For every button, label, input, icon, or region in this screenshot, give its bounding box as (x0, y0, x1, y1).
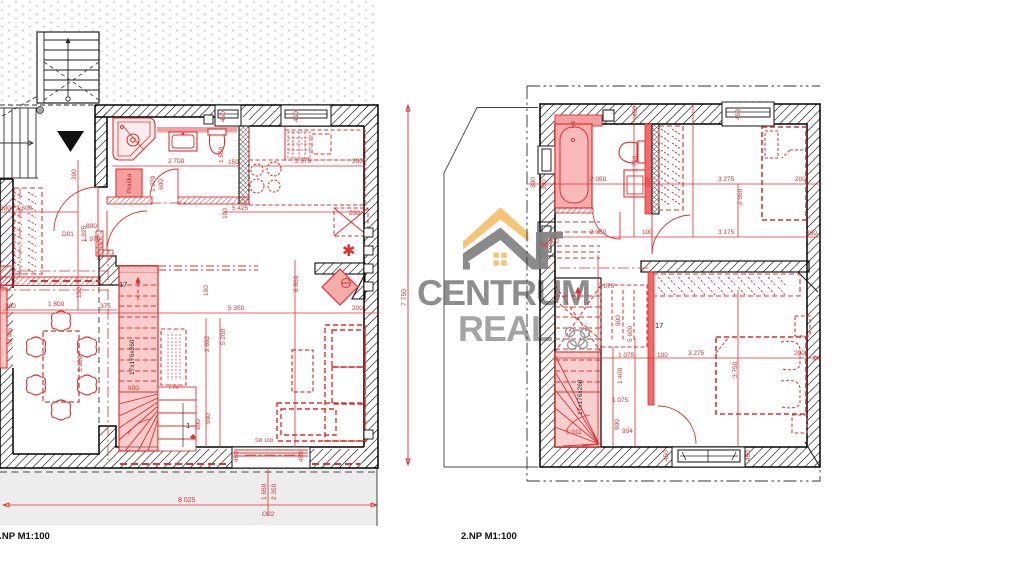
svg-text:150: 150 (203, 285, 210, 296)
svg-text:450: 450 (663, 450, 670, 461)
svg-text:450: 450 (632, 106, 639, 117)
svg-text:5 600: 5 600 (627, 325, 634, 342)
svg-text:100: 100 (657, 352, 668, 359)
svg-text:450: 450 (298, 451, 305, 462)
svg-text:3 275: 3 275 (718, 176, 735, 183)
svg-text:200: 200 (794, 350, 805, 357)
svg-text:150: 150 (76, 287, 83, 298)
svg-text:200: 200 (349, 210, 360, 217)
svg-text:Sill 100: Sill 100 (255, 438, 273, 444)
svg-text:5 200: 5 200 (220, 328, 227, 345)
svg-text:1: 1 (186, 421, 190, 430)
svg-text:1 970: 1 970 (150, 175, 157, 192)
svg-text:150: 150 (228, 159, 239, 166)
svg-text:1 800: 1 800 (48, 301, 65, 308)
svg-text:1 650: 1 650 (261, 483, 268, 500)
svg-text:900: 900 (195, 419, 202, 430)
svg-text:8 025: 8 025 (178, 497, 196, 504)
svg-text:1 075: 1 075 (618, 352, 635, 359)
svg-text:1 400: 1 400 (617, 367, 624, 384)
svg-text:2 575: 2 575 (295, 158, 312, 165)
svg-text:17: 17 (119, 280, 127, 289)
svg-text:200: 200 (352, 158, 363, 165)
svg-text:900: 900 (205, 413, 212, 424)
svg-text:REAL: REAL (458, 308, 552, 349)
svg-text:450: 450 (735, 109, 742, 120)
svg-text:900: 900 (615, 315, 622, 326)
svg-text:100: 100 (642, 229, 653, 236)
svg-text:375: 375 (100, 303, 111, 310)
svg-text:D01: D01 (62, 231, 74, 238)
svg-text:2 350: 2 350 (271, 483, 278, 500)
svg-text:3 750: 3 750 (732, 361, 739, 378)
svg-text:900: 900 (614, 419, 621, 430)
svg-text:6 850: 6 850 (293, 275, 300, 292)
svg-text:17x176x260: 17x176x260 (129, 339, 136, 375)
svg-text:2 050: 2 050 (590, 176, 607, 183)
svg-text:300: 300 (806, 230, 817, 237)
svg-text:3 600: 3 600 (77, 355, 84, 372)
svg-text:1 750: 1 750 (632, 155, 639, 172)
svg-text:2 950: 2 950 (737, 188, 744, 205)
svg-text:O02: O02 (262, 511, 275, 518)
svg-text:5 350: 5 350 (228, 305, 245, 312)
svg-text:1.NP M1:100: 1.NP M1:100 (0, 531, 50, 542)
svg-text:2 050: 2 050 (590, 229, 607, 236)
svg-text:300: 300 (541, 179, 548, 190)
svg-text:904: 904 (622, 428, 633, 435)
svg-text:✱: ✱ (342, 243, 355, 260)
svg-text:2 692: 2 692 (204, 335, 211, 352)
svg-text:17x176x260: 17x176x260 (577, 379, 584, 415)
svg-text:200: 200 (352, 305, 363, 312)
svg-text:1 550: 1 550 (218, 146, 225, 163)
svg-text:100: 100 (222, 208, 229, 219)
svg-text:450: 450 (745, 450, 752, 461)
svg-text:Pračka: Pračka (126, 173, 133, 193)
svg-text:2.NP M1:100: 2.NP M1:100 (461, 531, 517, 542)
svg-text:600: 600 (158, 179, 165, 190)
svg-text:450: 450 (220, 111, 227, 122)
svg-text:300: 300 (530, 177, 537, 188)
svg-text:3 175: 3 175 (718, 229, 735, 236)
svg-text:300: 300 (541, 242, 552, 249)
svg-text:200: 200 (795, 176, 806, 183)
svg-text:1 075: 1 075 (612, 397, 629, 404)
svg-text:300: 300 (0, 205, 11, 212)
svg-text:17: 17 (655, 321, 663, 330)
svg-text:7 750: 7 750 (401, 289, 408, 306)
svg-text:5 425: 5 425 (232, 205, 249, 212)
svg-text:1 925: 1 925 (81, 225, 88, 242)
svg-text:2 075: 2 075 (598, 283, 615, 290)
svg-text:3 600: 3 600 (16, 205, 33, 212)
svg-text:450: 450 (293, 111, 300, 122)
svg-text:300: 300 (71, 169, 78, 180)
svg-text:300: 300 (98, 239, 105, 250)
svg-text:450: 450 (233, 451, 240, 462)
svg-text:300: 300 (5, 303, 16, 310)
svg-text:Sill 900: Sill 900 (8, 328, 14, 346)
svg-text:2 700: 2 700 (168, 158, 185, 165)
svg-text:776: 776 (168, 384, 179, 391)
svg-text:100: 100 (645, 177, 652, 188)
svg-text:3 275: 3 275 (688, 350, 705, 357)
svg-text:1 011: 1 011 (566, 429, 582, 436)
svg-text:900: 900 (128, 385, 139, 392)
